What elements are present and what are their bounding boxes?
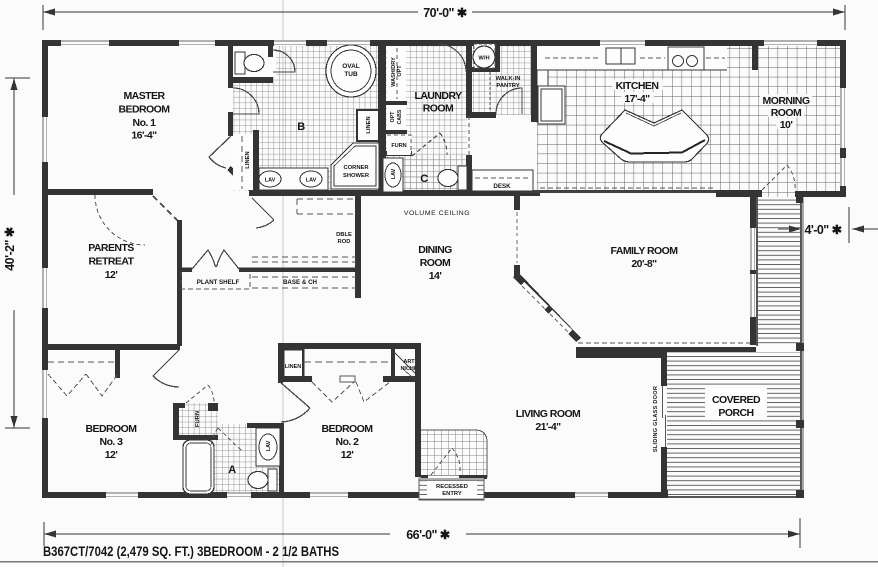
svg-text:LAV: LAV xyxy=(306,178,317,184)
svg-text:LINEN: LINEN xyxy=(366,116,372,133)
svg-text:DINING: DINING xyxy=(418,244,452,256)
svg-text:PARENTS: PARENTS xyxy=(88,242,134,254)
svg-text:DBLE: DBLE xyxy=(336,232,352,238)
svg-text:BASE & CH: BASE & CH xyxy=(283,279,318,286)
svg-text:ROOM: ROOM xyxy=(423,103,454,115)
svg-text:4'-0" ✱: 4'-0" ✱ xyxy=(804,223,842,237)
svg-text:SLIDING GLASS DOOR: SLIDING GLASS DOOR xyxy=(653,386,659,452)
svg-text:C: C xyxy=(420,173,428,185)
svg-text:70'-0" ✱: 70'-0" ✱ xyxy=(423,6,468,20)
svg-text:LAUNDRY: LAUNDRY xyxy=(414,90,462,102)
svg-text:12': 12' xyxy=(341,449,354,461)
svg-text:TUB: TUB xyxy=(344,71,358,78)
svg-text:No. 3: No. 3 xyxy=(100,436,124,448)
svg-text:FAMILY ROOM: FAMILY ROOM xyxy=(611,245,679,257)
svg-text:SHOWER: SHOWER xyxy=(343,173,370,179)
svg-text:RETREAT: RETREAT xyxy=(89,256,135,268)
svg-text:PORCH: PORCH xyxy=(718,407,753,419)
svg-text:VOLUME CEILING: VOLUME CEILING xyxy=(404,210,470,217)
svg-text:WALK-IN: WALK-IN xyxy=(496,76,521,82)
svg-text:LIVING ROOM: LIVING ROOM xyxy=(516,408,581,420)
svg-text:B: B xyxy=(297,121,305,133)
svg-text:OPT: OPT xyxy=(397,65,403,77)
svg-text:21'-4": 21'-4" xyxy=(535,421,561,433)
svg-text:B367CT/7042 (2,479 SQ. FT.) 3B: B367CT/7042 (2,479 SQ. FT.) 3BEDROOM - 2… xyxy=(43,544,339,559)
svg-text:LAV: LAV xyxy=(266,440,272,451)
svg-text:10': 10' xyxy=(780,119,793,131)
svg-text:DESK: DESK xyxy=(493,183,511,190)
svg-text:ENTRY: ENTRY xyxy=(442,491,462,497)
svg-text:MORNING: MORNING xyxy=(763,95,810,107)
svg-text:MASTER: MASTER xyxy=(123,90,165,102)
svg-text:40'-2" ✱: 40'-2" ✱ xyxy=(3,226,17,271)
svg-text:ROD: ROD xyxy=(338,239,351,245)
svg-text:BEDROOM: BEDROOM xyxy=(322,423,374,435)
svg-text:A: A xyxy=(228,464,236,476)
svg-text:12': 12' xyxy=(105,449,118,461)
svg-text:ART: ART xyxy=(403,359,415,365)
svg-text:CORNER: CORNER xyxy=(343,165,369,171)
svg-text:16'-4": 16'-4" xyxy=(131,130,157,142)
svg-text:17'-4": 17'-4" xyxy=(624,93,650,105)
svg-text:LINEN: LINEN xyxy=(285,364,302,370)
svg-text:OVAL: OVAL xyxy=(342,63,360,70)
svg-text:LINEN: LINEN xyxy=(245,151,251,168)
svg-text:No. 1: No. 1 xyxy=(133,117,157,129)
svg-text:CABS: CABS xyxy=(397,109,403,124)
svg-text:66'-0" ✱: 66'-0" ✱ xyxy=(406,528,451,542)
svg-text:PLANT SHELF: PLANT SHELF xyxy=(197,279,240,286)
svg-text:BEDROOM: BEDROOM xyxy=(119,104,171,116)
svg-text:ROOM: ROOM xyxy=(771,107,802,119)
svg-text:20'-8": 20'-8" xyxy=(631,258,657,270)
svg-text:RECESSED: RECESSED xyxy=(436,484,468,490)
svg-text:No. 2: No. 2 xyxy=(336,436,360,448)
svg-text:LAV: LAV xyxy=(391,168,397,179)
svg-text:ROOM: ROOM xyxy=(420,257,451,269)
svg-text:14': 14' xyxy=(429,270,442,282)
svg-text:BEDROOM: BEDROOM xyxy=(86,423,138,435)
svg-text:LAV: LAV xyxy=(265,178,276,184)
svg-text:FURN: FURN xyxy=(195,411,201,427)
svg-text:COVERED: COVERED xyxy=(712,394,761,406)
svg-text:FURN: FURN xyxy=(391,143,406,149)
svg-text:W/H: W/H xyxy=(478,56,489,62)
svg-text:KITCHEN: KITCHEN xyxy=(616,80,659,92)
svg-text:12': 12' xyxy=(105,269,118,281)
svg-text:OPT: OPT xyxy=(390,111,396,122)
